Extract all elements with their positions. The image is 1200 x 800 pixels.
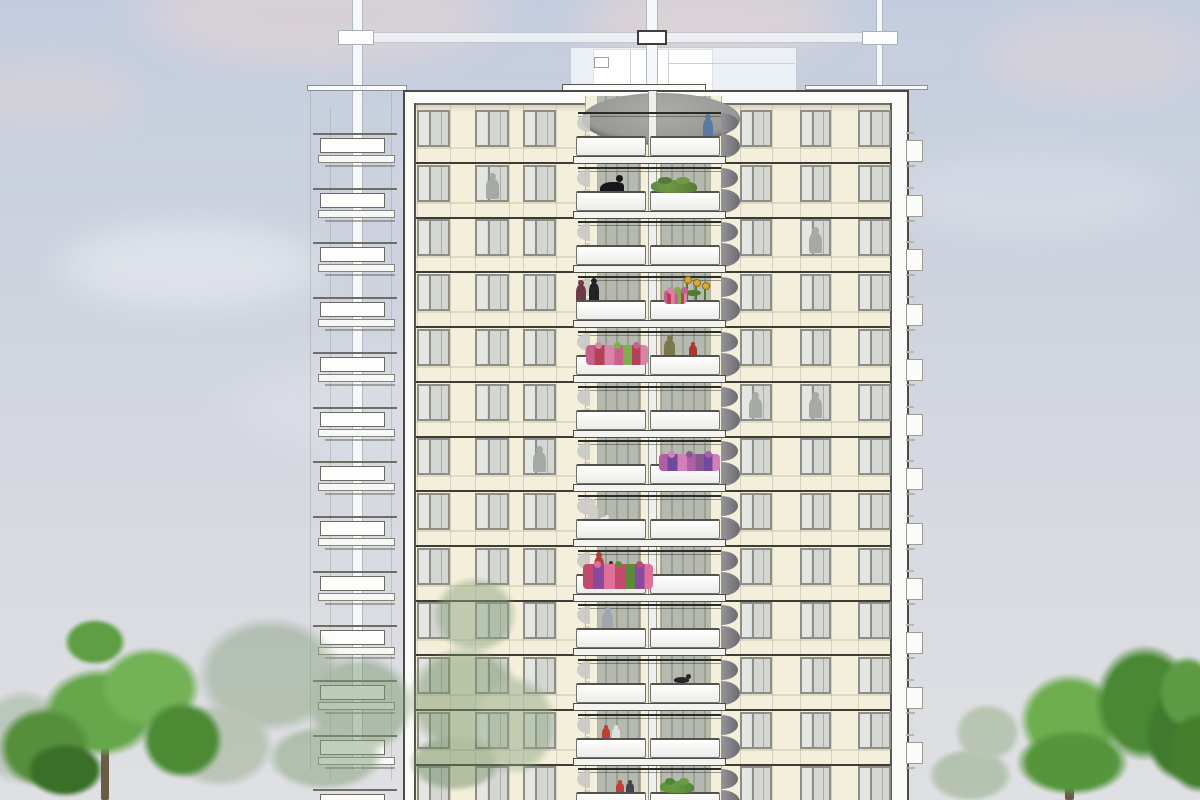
tree-right-bright: [0, 0, 1200, 800]
tree-canopy-blob: [1000, 720, 1145, 800]
elevation-drawing-stage: [0, 0, 1200, 800]
